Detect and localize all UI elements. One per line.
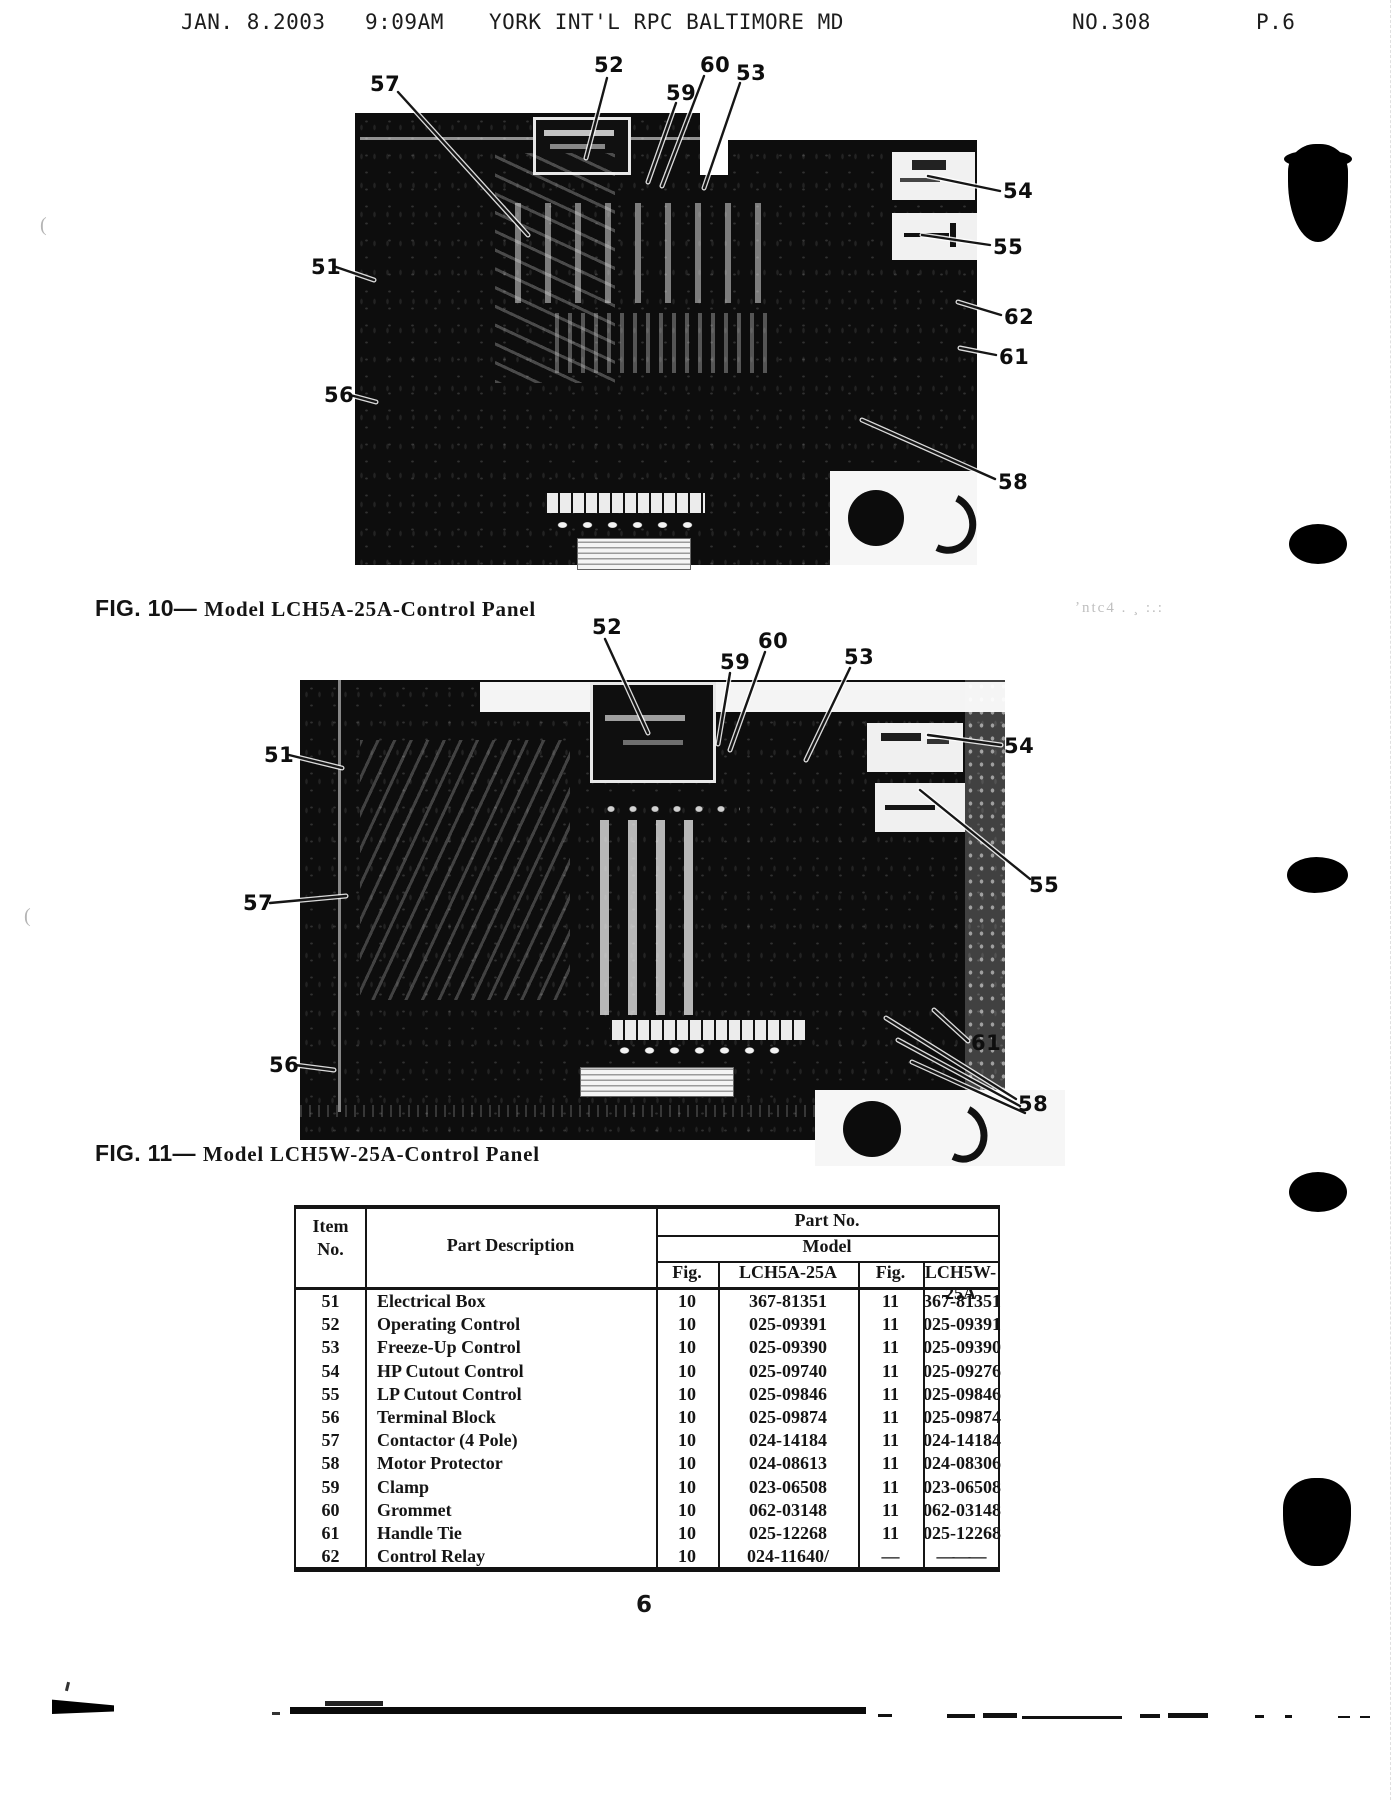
- table-cell: 51: [296, 1291, 365, 1312]
- table-cell: 024-08306: [923, 1453, 998, 1474]
- table-cell: 60: [296, 1500, 365, 1521]
- table-cell: 023-06508: [923, 1477, 998, 1498]
- table-cell: 025-09390: [923, 1337, 998, 1358]
- table-cell: 59: [296, 1477, 365, 1498]
- fig10-caption: FIG. 10—Model LCH5A-25A-Control Panel: [95, 595, 536, 622]
- fax-artifact: [290, 1707, 866, 1714]
- fig11-callout-51: 51: [264, 743, 294, 767]
- table-cell: 10: [656, 1523, 718, 1544]
- table-cell: 024-14184: [923, 1430, 998, 1451]
- table-cell: 10: [656, 1361, 718, 1382]
- table-cell: Motor Protector: [365, 1453, 656, 1474]
- table-row: 60Grommet10062-0314811062-03148: [296, 1499, 998, 1522]
- fig10-callout-60: 60: [700, 53, 730, 77]
- fig11-callout-54: 54: [1004, 734, 1034, 758]
- terminal-screws: [550, 517, 700, 533]
- fig11-callout-59: 59: [720, 650, 750, 674]
- fig10-callout-62: 62: [1004, 305, 1034, 329]
- table-cell: 11: [858, 1453, 923, 1474]
- punch-hole-mark: [1283, 1478, 1351, 1566]
- fig10-callout-53: 53: [736, 61, 766, 85]
- terminal-screws: [612, 1042, 792, 1059]
- fax-artifact: [983, 1713, 1017, 1718]
- table-cell: 55: [296, 1384, 365, 1405]
- connector-row: [600, 800, 740, 818]
- fax-artifact: [1360, 1716, 1370, 1718]
- hp-cutout-control-box: [867, 723, 963, 772]
- lp-cutout-control-box: [892, 213, 977, 260]
- table-cell: 025-09740: [718, 1361, 858, 1382]
- fax-artifact: [878, 1714, 892, 1717]
- table-cell: 58: [296, 1453, 365, 1474]
- photo-detail: [728, 113, 977, 140]
- column-header-fig-w: Fig.: [858, 1262, 923, 1283]
- fax-datetime: JAN. 8.2003 9:09AM: [181, 10, 444, 34]
- table-body: 51Electrical Box10367-8135111367-8135152…: [296, 1290, 998, 1568]
- table-cell: ———: [923, 1546, 998, 1567]
- table-cell: 024-08613: [718, 1453, 858, 1474]
- label-line: [544, 130, 614, 136]
- table-cell: 024-14184: [718, 1430, 858, 1451]
- table-cell: 025-09391: [718, 1314, 858, 1335]
- table-cell: 10: [656, 1407, 718, 1428]
- table-row: 59Clamp10023-0650811023-06508: [296, 1476, 998, 1499]
- punch-hole-mark: [1284, 150, 1352, 168]
- terminal-strip: [545, 493, 705, 513]
- table-cell: 062-03148: [923, 1500, 998, 1521]
- fig10-callout-57: 57: [370, 72, 400, 96]
- label-line: [605, 715, 685, 721]
- table-cell: 025-09874: [718, 1407, 858, 1428]
- fig11-photo: [300, 680, 1005, 1140]
- fig10-caption-title: Model LCH5A-25A-Control Panel: [204, 597, 536, 621]
- fig11-caption: FIG. 11—Model LCH5W-25A-Control Panel: [95, 1140, 540, 1167]
- table-cell: Handle Tie: [365, 1523, 656, 1544]
- fig11-caption-title: Model LCH5W-25A-Control Panel: [203, 1142, 540, 1166]
- fig10-caption-label: FIG. 10—: [95, 595, 197, 621]
- column-header-part-description: Part Description: [365, 1235, 656, 1256]
- component-mark: [904, 233, 949, 237]
- relay-bank: [555, 313, 775, 373]
- table-cell: 10: [656, 1453, 718, 1474]
- table-cell: 025-09846: [718, 1384, 858, 1405]
- table-row: 61Handle Tie10025-1226811025-12268: [296, 1522, 998, 1545]
- fax-artifact: [1285, 1715, 1292, 1718]
- fax-artifact: [1255, 1715, 1264, 1718]
- table-row: 55LP Cutout Control10025-0984611025-0984…: [296, 1383, 998, 1406]
- table-row: 56Terminal Block10025-0987411025-09874: [296, 1406, 998, 1429]
- photo-detail: [360, 137, 700, 140]
- table-cell: 025-09391: [923, 1314, 998, 1335]
- table-cell: Terminal Block: [365, 1407, 656, 1428]
- fax-artifact: [65, 1682, 70, 1691]
- table-cell: Freeze-Up Control: [365, 1337, 656, 1358]
- fig10-callout-54: 54: [1003, 179, 1033, 203]
- table-cell: 11: [858, 1291, 923, 1312]
- fig11-callout-55: 55: [1029, 873, 1059, 897]
- margin-mark: (: [24, 905, 31, 928]
- table-cell: HP Cutout Control: [365, 1361, 656, 1382]
- lp-cutout-control-box: [875, 783, 965, 832]
- fax-artifact: [325, 1701, 383, 1706]
- fig11-callout-53: 53: [844, 645, 874, 669]
- table-cell: 025-09276: [923, 1361, 998, 1382]
- margin-mark: (: [40, 214, 47, 237]
- table-cell: Clamp: [365, 1477, 656, 1498]
- punch-hole-mark: [1289, 1172, 1347, 1212]
- component-mark: [927, 739, 949, 744]
- fax-artifact: [1022, 1716, 1122, 1719]
- fig11-caption-label: FIG. 11—: [95, 1140, 196, 1166]
- parts-table: Item No. Part Description Part No. Model…: [294, 1205, 1000, 1572]
- table-cell: Grommet: [365, 1500, 656, 1521]
- plate-arc: [909, 484, 985, 562]
- column-header-fig-a: Fig.: [656, 1262, 718, 1283]
- column-header-lch5a-25a: LCH5A-25A: [718, 1262, 858, 1283]
- fax-document-page: JAN. 8.2003 9:09AM YORK INT'L RPC BALTIM…: [0, 0, 1394, 1800]
- table-cell: Electrical Box: [365, 1291, 656, 1312]
- table-cell: 11: [858, 1500, 923, 1521]
- table-cell: 11: [858, 1477, 923, 1498]
- table-cell: Control Relay: [365, 1546, 656, 1567]
- table-cell: 61: [296, 1523, 365, 1544]
- table-cell: 10: [656, 1314, 718, 1335]
- table-row: 57Contactor (4 Pole)10024-1418411024-141…: [296, 1429, 998, 1452]
- fig10-callout-58: 58: [998, 470, 1028, 494]
- table-cell: 10: [656, 1500, 718, 1521]
- table-cell: 024-11640/: [718, 1546, 858, 1567]
- table-cell: 56: [296, 1407, 365, 1428]
- table-cell: 025-12268: [718, 1523, 858, 1544]
- page-number: 6: [624, 1592, 664, 1618]
- punch-hole-mark: [1287, 857, 1348, 893]
- fax-station: YORK INT'L RPC BALTIMORE MD: [489, 10, 844, 34]
- plate-hole: [843, 1101, 901, 1157]
- fig10-callout-61: 61: [999, 345, 1029, 369]
- component-mark: [885, 805, 935, 810]
- operating-control-box: [590, 682, 716, 783]
- model-plate: [830, 471, 977, 565]
- fig10-photo: [355, 113, 977, 565]
- punch-hole-mark: [1289, 524, 1347, 564]
- table-row: 62Control Relay10024-11640/————: [296, 1545, 998, 1568]
- table-cell: 367-81351: [718, 1291, 858, 1312]
- fig11-callout-60: 60: [758, 629, 788, 653]
- table-cell: —: [858, 1546, 923, 1567]
- table-cell: 10: [656, 1430, 718, 1451]
- table-cell: 11: [858, 1337, 923, 1358]
- component-mark: [881, 733, 921, 741]
- wiring-texture: [360, 740, 570, 1000]
- fig10-callout-51: 51: [311, 255, 341, 279]
- hp-cutout-control-box: [892, 152, 975, 200]
- table-cell: 10: [656, 1477, 718, 1498]
- table-cell: 062-03148: [718, 1500, 858, 1521]
- fig11-callout-57: 57: [243, 891, 273, 915]
- table-cell: 023-06508: [718, 1477, 858, 1498]
- table-row: 52Operating Control10025-0939111025-0939…: [296, 1313, 998, 1336]
- component-mark: [912, 160, 946, 170]
- fig10-callout-59: 59: [666, 81, 696, 105]
- table-row: 58Motor Protector10024-0861311024-08306: [296, 1452, 998, 1475]
- fax-artifact: [1168, 1713, 1208, 1718]
- column-header-item-line1: Item: [296, 1215, 365, 1238]
- table-cell: 62: [296, 1546, 365, 1567]
- plate-arc: [926, 1096, 995, 1170]
- table-cell: 10: [656, 1291, 718, 1312]
- fig10-callout-52: 52: [594, 53, 624, 77]
- fax-number: NO.308: [1072, 10, 1151, 34]
- label-line: [550, 144, 605, 149]
- photo-detail: [338, 680, 341, 1112]
- fax-artifact: [1140, 1714, 1160, 1718]
- label-line: [623, 740, 683, 745]
- fig11-callout-52: 52: [592, 615, 622, 639]
- fig11-callout-58: 58: [1018, 1092, 1048, 1116]
- table-cell: 54: [296, 1361, 365, 1382]
- fig11-callout-56: 56: [269, 1053, 299, 1077]
- contactor-columns: [600, 820, 710, 1015]
- table-cell: 10: [656, 1546, 718, 1567]
- table-cell: 025-09390: [718, 1337, 858, 1358]
- fax-artifact: [1338, 1716, 1350, 1718]
- fax-artifact: [947, 1714, 975, 1718]
- terminal-strip: [610, 1020, 805, 1040]
- column-header-item-no: Item No.: [296, 1215, 365, 1261]
- warning-label: [580, 1067, 734, 1097]
- page-edge-line: [1390, 0, 1392, 1800]
- contactor-cluster: [515, 203, 765, 303]
- table-cell: 11: [858, 1314, 923, 1335]
- table-cell: Contactor (4 Pole): [365, 1430, 656, 1451]
- table-cell: 11: [858, 1361, 923, 1382]
- fig10-callout-56: 56: [324, 383, 354, 407]
- table-row: 53Freeze-Up Control10025-0939011025-0939…: [296, 1336, 998, 1359]
- table-row: 51Electrical Box10367-8135111367-81351: [296, 1290, 998, 1313]
- fig11-callout-61: 61: [971, 1031, 1001, 1055]
- table-cell: 11: [858, 1407, 923, 1428]
- table-cell: 57: [296, 1430, 365, 1451]
- plate-hole: [848, 490, 904, 546]
- table-cell: 025-09874: [923, 1407, 998, 1428]
- table-cell: LP Cutout Control: [365, 1384, 656, 1405]
- table-cell: 025-12268: [923, 1523, 998, 1544]
- table-cell: 11: [858, 1384, 923, 1405]
- fig10-callout-55: 55: [993, 235, 1023, 259]
- component-mark: [900, 178, 940, 182]
- fax-artifact: [52, 1696, 114, 1714]
- table-row: 54HP Cutout Control10025-0974011025-0927…: [296, 1360, 998, 1383]
- photo-detail: [700, 113, 728, 175]
- table-cell: 11: [858, 1523, 923, 1544]
- column-header-part-no: Part No.: [656, 1210, 998, 1231]
- component-mark: [950, 223, 956, 247]
- margin-smudge: ʼntc4 . ¸ :.:: [1075, 600, 1164, 617]
- warning-label: [577, 538, 691, 570]
- table-cell: 53: [296, 1337, 365, 1358]
- fax-artifact: [272, 1712, 280, 1715]
- column-header-model: Model: [656, 1236, 998, 1257]
- column-header-item-line2: No.: [296, 1238, 365, 1261]
- table-cell: 52: [296, 1314, 365, 1335]
- table-cell: Operating Control: [365, 1314, 656, 1335]
- table-cell: 367-81351: [923, 1291, 998, 1312]
- table-cell: 11: [858, 1430, 923, 1451]
- photo-detail: [480, 682, 1005, 712]
- table-cell: 10: [656, 1384, 718, 1405]
- fax-page: P.6: [1256, 10, 1295, 34]
- table-cell: 10: [656, 1337, 718, 1358]
- table-cell: 025-09846: [923, 1384, 998, 1405]
